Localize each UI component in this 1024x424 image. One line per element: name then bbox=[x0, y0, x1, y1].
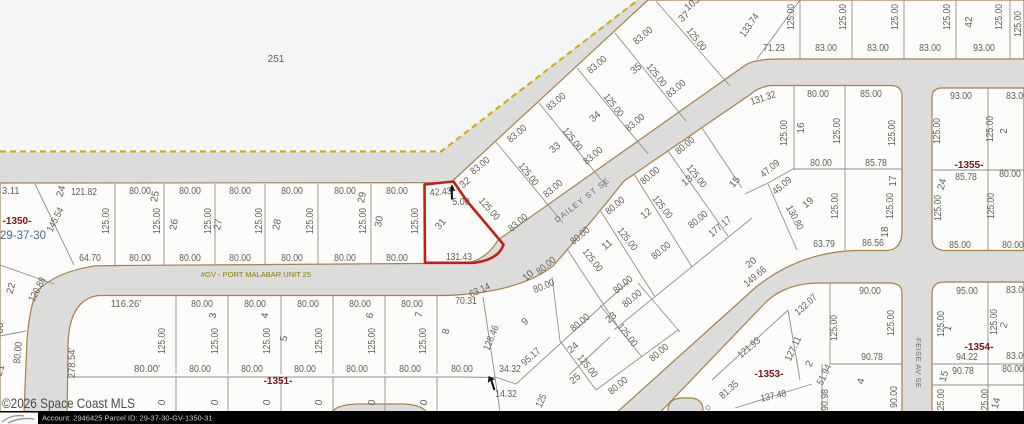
svg-text:125.00: 125.00 bbox=[942, 4, 953, 30]
svg-text:278.54': 278.54' bbox=[67, 348, 78, 378]
svg-text:17: 17 bbox=[888, 175, 899, 187]
svg-text:125.00: 125.00 bbox=[1013, 11, 1024, 37]
svg-text:125.00: 125.00 bbox=[410, 208, 421, 234]
svg-text:64.70: 64.70 bbox=[79, 253, 101, 264]
svg-text:63.79: 63.79 bbox=[813, 239, 835, 250]
svg-text:125.00: 125.00 bbox=[885, 193, 896, 219]
svg-text:85.78: 85.78 bbox=[865, 158, 887, 169]
svg-text:85.00: 85.00 bbox=[860, 89, 882, 100]
svg-text:16: 16 bbox=[796, 122, 807, 134]
svg-text:116.26': 116.26' bbox=[111, 299, 141, 310]
svg-text:80.00: 80.00 bbox=[386, 186, 408, 197]
svg-text:83.00: 83.00 bbox=[1006, 351, 1024, 362]
svg-text:125.00: 125.00 bbox=[254, 208, 265, 234]
svg-text:125.00: 125.00 bbox=[932, 118, 943, 144]
svg-text:125.00: 125.00 bbox=[829, 315, 840, 341]
svg-text:80.00: 80.00 bbox=[12, 341, 25, 364]
svg-text:125.00: 125.00 bbox=[358, 208, 369, 234]
svg-text:125.00: 125.00 bbox=[786, 4, 797, 30]
svg-text:80.00: 80.00 bbox=[810, 158, 832, 169]
svg-text:80.00: 80.00 bbox=[244, 299, 266, 310]
svg-text:14.32: 14.32 bbox=[495, 389, 517, 400]
svg-text:80.00: 80.00 bbox=[346, 364, 368, 375]
svg-text:125.00: 125.00 bbox=[985, 116, 996, 142]
svg-text:2: 2 bbox=[999, 128, 1010, 134]
svg-text:Account: 2946425 Parcel ID:: Account: 2946425 Parcel ID: 29-37-30-GV-… bbox=[42, 414, 213, 423]
svg-text:85.00: 85.00 bbox=[949, 240, 971, 251]
svg-text:80.00: 80.00 bbox=[281, 253, 303, 264]
svg-text:80.00: 80.00 bbox=[179, 186, 201, 197]
svg-text:86.56: 86.56 bbox=[862, 238, 884, 249]
svg-text:94.22: 94.22 bbox=[956, 352, 978, 363]
svg-text:71.23: 71.23 bbox=[763, 43, 785, 54]
svg-text:80.00: 80.00 bbox=[229, 253, 251, 264]
svg-text:80.00: 80.00 bbox=[807, 89, 829, 100]
svg-text:80.00: 80.00 bbox=[294, 364, 316, 375]
svg-text:121.82: 121.82 bbox=[71, 187, 97, 198]
svg-text:3.11: 3.11 bbox=[2, 186, 20, 197]
svg-text:125.00: 125.00 bbox=[887, 120, 898, 146]
svg-text:80.00: 80.00 bbox=[451, 364, 473, 375]
svg-text:80.00: 80.00 bbox=[349, 299, 371, 310]
svg-text:125.00: 125.00 bbox=[936, 311, 947, 337]
svg-text:80.00: 80.00 bbox=[1002, 364, 1024, 375]
svg-text:93.00: 93.00 bbox=[950, 91, 972, 102]
svg-text:125.00: 125.00 bbox=[994, 4, 1005, 30]
svg-text:18: 18 bbox=[880, 226, 891, 238]
svg-text:80.00: 80.00 bbox=[129, 253, 151, 264]
svg-text:-1350-: -1350- bbox=[3, 216, 32, 227]
svg-text:80.00: 80.00 bbox=[401, 299, 423, 310]
svg-text:80.00: 80.00 bbox=[999, 169, 1021, 180]
svg-text:42: 42 bbox=[964, 16, 975, 28]
svg-text:125.00: 125.00 bbox=[262, 328, 273, 354]
svg-text:90.98: 90.98 bbox=[820, 389, 831, 411]
svg-text:-1354-: -1354- bbox=[965, 342, 994, 353]
svg-text:34.32: 34.32 bbox=[499, 364, 521, 375]
svg-text:83.00: 83.00 bbox=[1006, 91, 1024, 102]
svg-text:93.00: 93.00 bbox=[973, 43, 995, 54]
svg-text:125.00: 125.00 bbox=[832, 118, 843, 144]
svg-text:125.00: 125.00 bbox=[933, 195, 944, 221]
svg-text:90.00: 90.00 bbox=[889, 386, 900, 408]
svg-text:5.00: 5.00 bbox=[452, 197, 470, 208]
svg-text:80.00: 80.00 bbox=[281, 186, 303, 197]
svg-text:125.00: 125.00 bbox=[890, 4, 901, 30]
svg-text:95.00: 95.00 bbox=[956, 286, 978, 297]
svg-text:85.78: 85.78 bbox=[955, 172, 977, 183]
svg-text:125.00: 125.00 bbox=[157, 328, 168, 354]
svg-text:#GV - PORT MALABAR UNIT 25: #GV - PORT MALABAR UNIT 25 bbox=[201, 270, 311, 279]
svg-text:42.43: 42.43 bbox=[429, 186, 452, 199]
svg-text:80.00: 80.00 bbox=[179, 253, 201, 264]
svg-text:29-37-30: 29-37-30 bbox=[0, 230, 46, 242]
svg-text:80.00: 80.00 bbox=[297, 299, 319, 310]
svg-text:125.00: 125.00 bbox=[838, 4, 849, 30]
svg-text:125.00: 125.00 bbox=[367, 328, 378, 354]
svg-text:80.00': 80.00' bbox=[134, 364, 160, 375]
svg-text:125.00: 125.00 bbox=[305, 208, 316, 234]
svg-text:83.00: 83.00 bbox=[867, 43, 889, 54]
svg-text:251: 251 bbox=[268, 54, 285, 65]
svg-text:83.00: 83.00 bbox=[919, 43, 941, 54]
svg-text:80.00: 80.00 bbox=[189, 364, 211, 375]
svg-text:83.00: 83.00 bbox=[815, 43, 837, 54]
svg-text:125.00: 125.00 bbox=[101, 208, 112, 234]
svg-text:90.78: 90.78 bbox=[952, 366, 974, 377]
svg-text:125.00: 125.00 bbox=[210, 328, 221, 354]
svg-text:80.00: 80.00 bbox=[386, 253, 408, 264]
svg-text:FEISE AV SE: FEISE AV SE bbox=[914, 338, 923, 388]
svg-text:131.43: 131.43 bbox=[446, 252, 472, 263]
svg-text:90.78: 90.78 bbox=[861, 352, 883, 363]
svg-text:125.00: 125.00 bbox=[314, 328, 325, 354]
svg-text:83.00: 83.00 bbox=[1006, 285, 1024, 296]
svg-text:125.00: 125.00 bbox=[152, 208, 163, 234]
svg-text:125.00: 125.00 bbox=[989, 309, 1000, 335]
svg-text:-1351-: -1351- bbox=[264, 376, 293, 387]
svg-text:125.00: 125.00 bbox=[886, 310, 897, 336]
svg-text:80.00: 80.00 bbox=[399, 364, 421, 375]
svg-text:80.00: 80.00 bbox=[334, 186, 356, 197]
svg-text:80.00: 80.00 bbox=[191, 299, 213, 310]
svg-text:80.00: 80.00 bbox=[241, 364, 263, 375]
svg-text:©2026 Space Coast MLS: ©2026 Space Coast MLS bbox=[2, 396, 135, 411]
svg-text:125.00: 125.00 bbox=[986, 193, 997, 219]
svg-text:80.00: 80.00 bbox=[1002, 240, 1024, 251]
svg-text:125.00: 125.00 bbox=[830, 193, 841, 219]
svg-text:-1355-: -1355- bbox=[955, 160, 984, 171]
svg-text:80.00: 80.00 bbox=[229, 186, 251, 197]
svg-text:90.00: 90.00 bbox=[859, 286, 881, 297]
svg-text:125.00: 125.00 bbox=[779, 120, 790, 146]
svg-text:125.00: 125.00 bbox=[418, 328, 429, 354]
svg-text:00: 00 bbox=[0, 322, 6, 334]
svg-text:80.00: 80.00 bbox=[334, 253, 356, 264]
svg-text:80.00: 80.00 bbox=[129, 186, 151, 197]
svg-text:-1353-: -1353- bbox=[755, 369, 784, 380]
